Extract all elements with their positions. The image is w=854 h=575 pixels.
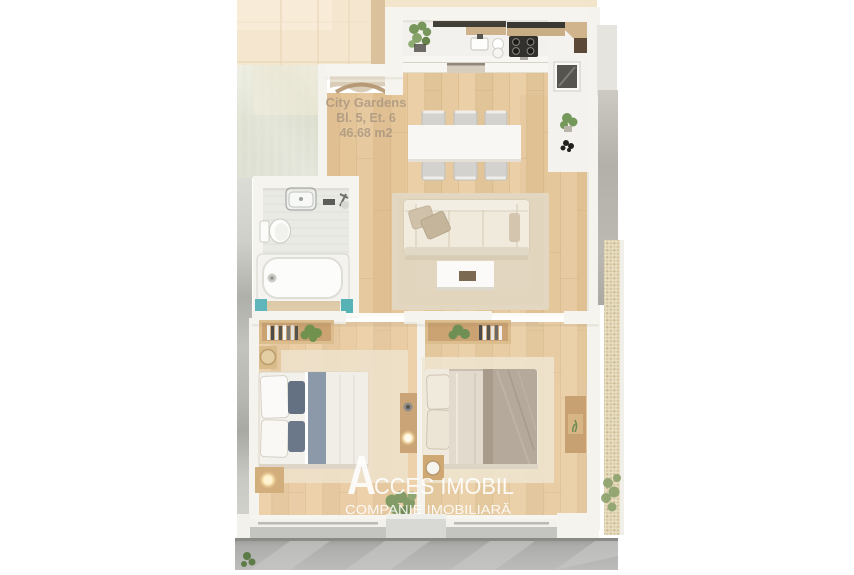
svg-text:COMPANIE IMOBILIARĂ: COMPANIE IMOBILIARĂ	[345, 502, 512, 517]
svg-text:Bl. 5, Et. 6: Bl. 5, Et. 6	[336, 111, 396, 125]
svg-text:46.68 m2: 46.68 m2	[340, 126, 393, 140]
svg-text:City Gardens: City Gardens	[326, 95, 407, 110]
svg-text:CCES IMOBIL: CCES IMOBIL	[374, 473, 514, 499]
